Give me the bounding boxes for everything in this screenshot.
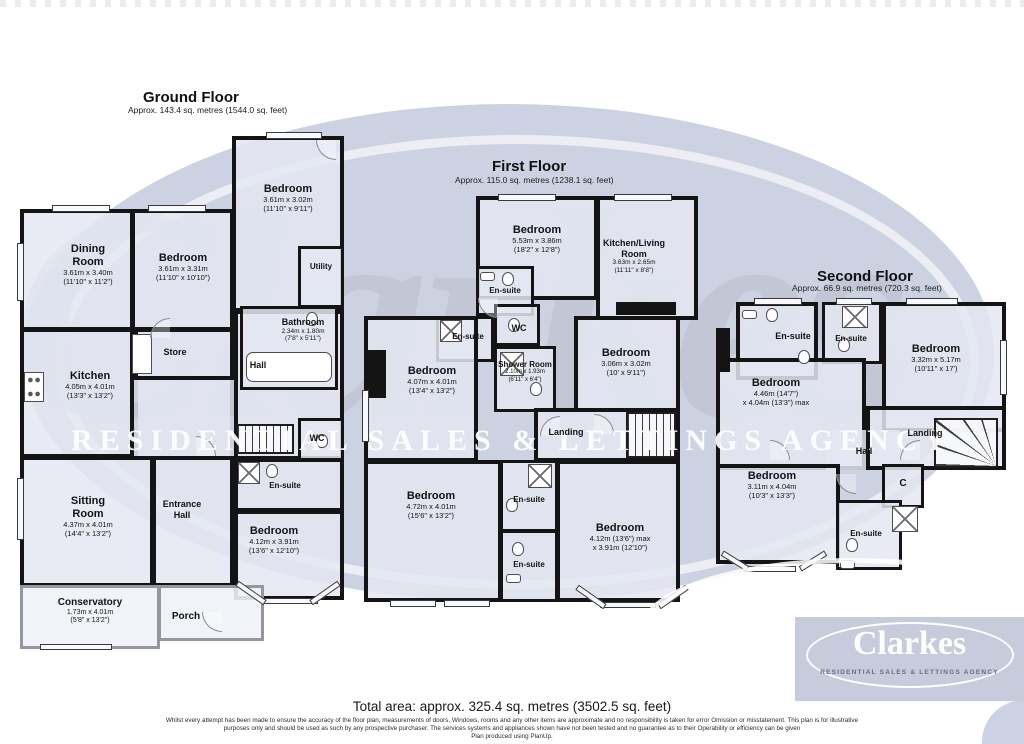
room-label-bedroom: Bedroom 3.61m x 3.02m (11'10" x 9'11") (240, 183, 336, 214)
room-label-porch: Porch (164, 611, 208, 623)
room-label-sitting-room: Sitting Room 4.37m x 4.01m (14'4" x 13'2… (60, 495, 116, 539)
room-label-conservatory: Conservatory 1.73m x 4.01m (5'8" x 13'2"… (32, 597, 148, 625)
ground-floor-title: Ground Floor (143, 89, 239, 106)
room-label-landing: Landing (898, 428, 952, 439)
room-label-hall: Hall (846, 446, 882, 457)
room-label-utility: Utility (300, 262, 342, 271)
room-label-ensuite: En-suite (766, 331, 820, 342)
first-floor-title: First Floor (492, 158, 566, 175)
room-label-ensuite: En-suite (502, 495, 556, 504)
room-label-store: Store (152, 347, 198, 358)
room-label-ensuite: En-suite (838, 529, 894, 538)
room-label-bathroom: Bathroom 2.34m x 1.80m (7'8" x 5'11") (264, 317, 342, 343)
labels-layer: Ground Floor Approx. 143.4 sq. metres (1… (0, 0, 1024, 744)
room-label-hall: Hall (240, 360, 276, 371)
room-label-wc: WC (302, 433, 332, 444)
room-label-bedroom: Bedroom 3.32m x 5.17m (10'11" x 17') (884, 343, 988, 374)
room-label-ensuite: En-suite (444, 332, 492, 341)
room-label-bedroom: Bedroom 4.72m x 4.01m (15'6" x 13'2") (382, 490, 480, 521)
room-label-kitchen-living-room: Kitchen/Living Room 3.63m x 2.65m (11'11… (596, 238, 672, 275)
room-label-bedroom: Bedroom 4.12m (13'6") max x 3.91m (12'10… (568, 522, 672, 553)
room-label-ensuite: En-suite (502, 560, 556, 569)
first-floor-subtitle: Approx. 115.0 sq. metres (1238.1 sq. fee… (455, 175, 614, 185)
room-label-bedroom: Bedroom 4.12m x 3.91m (13'6" x 12'10") (224, 525, 324, 556)
room-label-wc: WC (506, 323, 532, 334)
room-label-bedroom: Bedroom 3.06m x 3.02m (10' x 9'11") (576, 347, 676, 378)
room-label-ensuite: En-suite (828, 334, 874, 343)
room-label-cupboard: C (894, 478, 912, 490)
room-label-bedroom: Bedroom 4.07m x 4.01m (13'4" x 13'2") (384, 365, 480, 396)
room-label-bedroom: Bedroom 4.46m (14'7") x 4.04m (13'3") ma… (724, 377, 828, 408)
room-label-bedroom: Bedroom 3.11m x 4.04m (10'3" x 13'3") (722, 470, 822, 501)
second-floor-subtitle: Approx. 66.9 sq. metres (720.3 sq. feet) (792, 283, 942, 293)
room-label-bedroom: Bedroom 3.61m x 3.31m (11'10" x 10'10") (136, 252, 230, 283)
room-label-kitchen: Kitchen 4.05m x 4.01m (13'3" x 13'2") (44, 370, 136, 401)
room-label-dining-room: Dining Room 3.61m x 3.40m (11'10" x 11'2… (58, 243, 118, 287)
ground-floor-subtitle: Approx. 143.4 sq. metres (1544.0 sq. fee… (128, 105, 287, 115)
room-label-ensuite: En-suite (482, 286, 528, 295)
room-label-shower-room: Shower Room 2.10m x 1.93m (6'11" x 6'4") (497, 360, 553, 384)
room-label-entrance-hall: Entrance Hall (156, 499, 208, 520)
floorplan-screenshot: { "watermark": { "brand": "Clarkes", "ta… (0, 0, 1024, 744)
room-label-ensuite: En-suite (262, 481, 308, 490)
room-label-bedroom: Bedroom 5.53m x 3.86m (18'2" x 12'8") (488, 224, 586, 255)
room-label-landing: Landing (541, 427, 591, 438)
